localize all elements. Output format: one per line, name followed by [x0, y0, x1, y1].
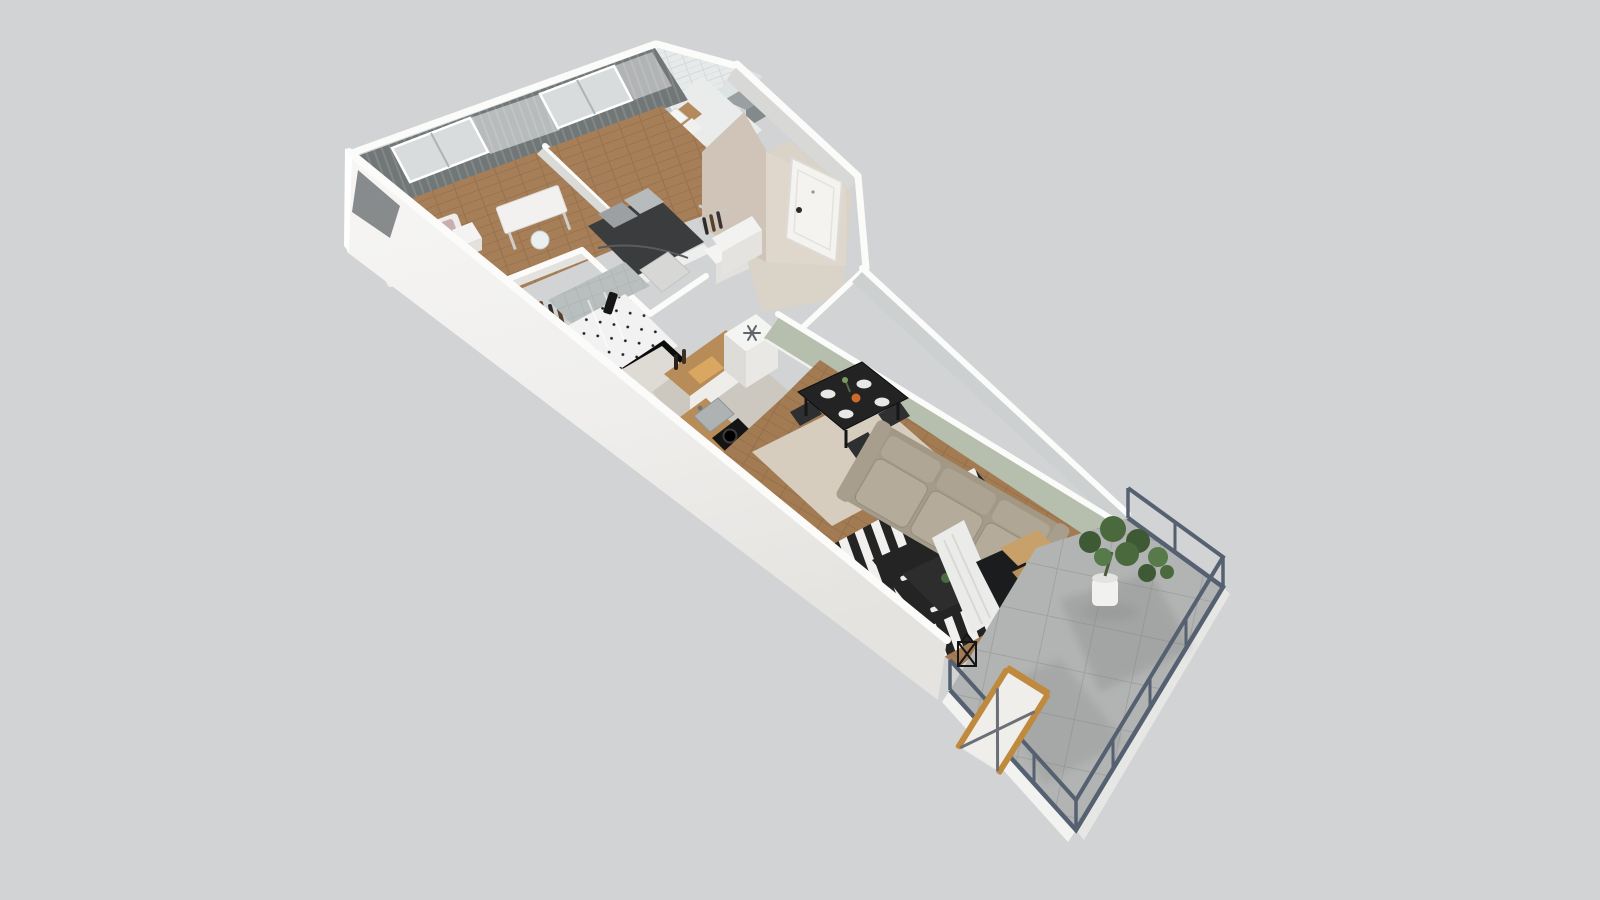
door-handle	[796, 207, 802, 213]
faucet	[698, 406, 703, 411]
food-bowl	[852, 394, 861, 403]
plate	[821, 390, 836, 399]
floorplan-stage	[0, 0, 1600, 900]
door-peephole	[811, 190, 814, 193]
desk-chair	[531, 231, 549, 249]
flowers	[842, 377, 848, 383]
burner	[724, 430, 737, 443]
plate	[857, 380, 872, 389]
plate	[839, 410, 854, 419]
plate	[875, 398, 890, 407]
apartment-3d-floorplan	[0, 0, 1600, 900]
